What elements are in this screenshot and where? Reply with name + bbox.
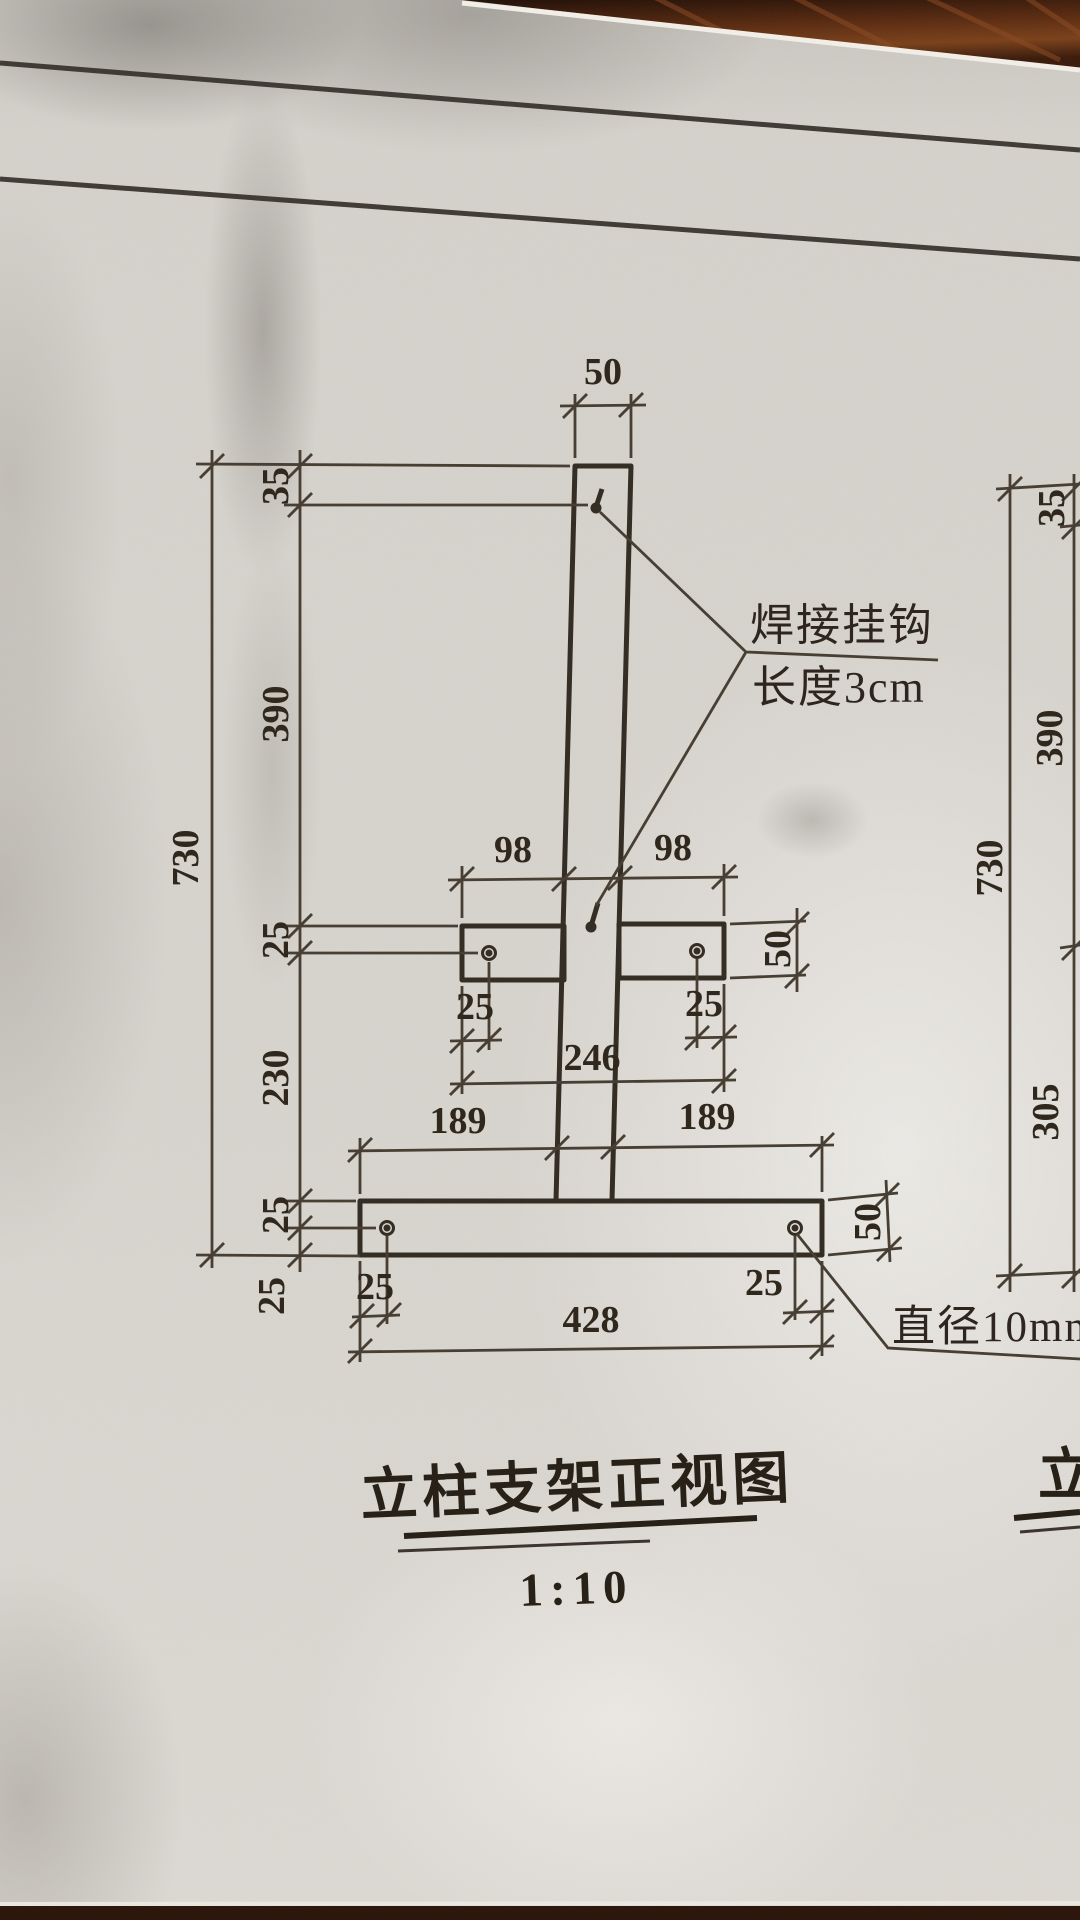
drawing-layer: 50 730 35 390 25 230 25 25 98 98 25 25 2… bbox=[0, 0, 1080, 1920]
photo-of-engineering-drawing: 50 730 35 390 25 230 25 25 98 98 25 25 2… bbox=[0, 0, 1080, 1920]
paper-grain-texture bbox=[0, 0, 1080, 1920]
